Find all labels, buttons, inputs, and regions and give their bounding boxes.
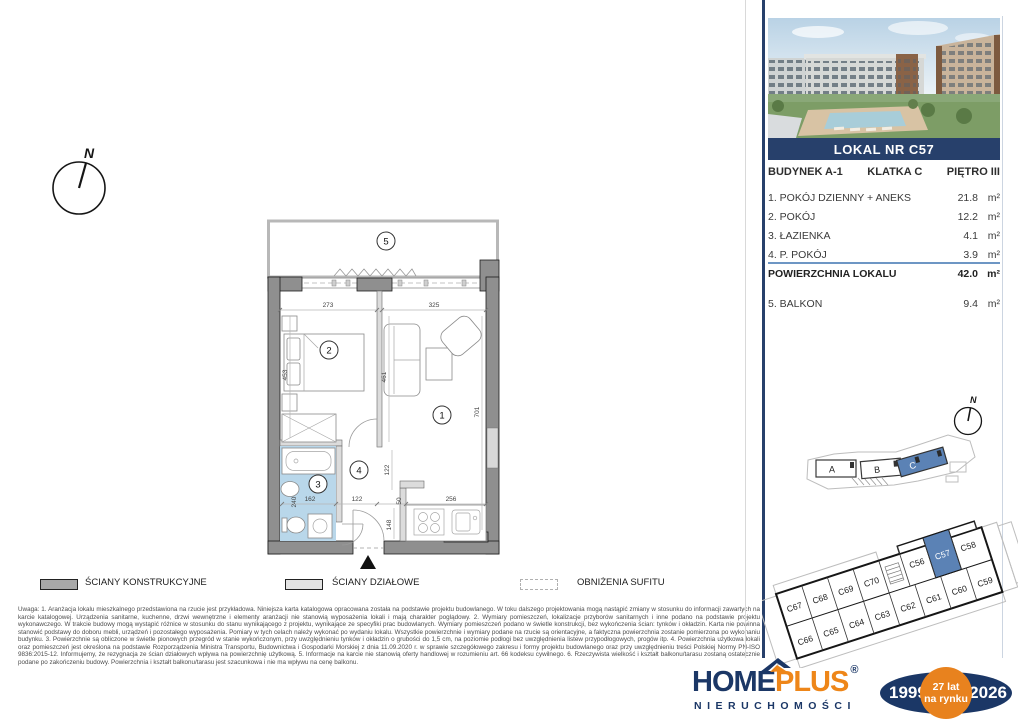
siteplan-hatch [852, 478, 888, 485]
brand-subtitle: NIERUCHOMOŚCI [694, 700, 856, 712]
room-5-badge: 5 [383, 237, 388, 248]
room-4-badge: 4 [356, 466, 361, 477]
unit-banner: LOKAL NR C57 [768, 138, 1000, 160]
svg-text:256: 256 [446, 496, 457, 503]
svg-text:273: 273 [323, 302, 334, 309]
staircase-label: KLATKA C [867, 166, 922, 178]
building-c: C [897, 447, 948, 477]
north-label: N [84, 145, 95, 161]
room-1-badge: 1 [439, 411, 444, 422]
balcony-row: 5. BALKON 9.4 m² [768, 298, 1000, 310]
svg-text:148: 148 [386, 519, 393, 530]
svg-text:325: 325 [429, 302, 440, 309]
bedroom-furniture [282, 316, 364, 442]
registered-mark: ® [850, 664, 858, 676]
building-label: BUDYNEK A-1 [768, 166, 843, 178]
coffee-table [426, 348, 452, 380]
legend-swatch-structural [40, 579, 78, 590]
legend-label-ceiling: OBNIŻENIA SUFITU [577, 577, 665, 588]
badge-year-end: 2026 [969, 683, 1007, 703]
nightstand [282, 394, 297, 411]
toilet-tank [282, 518, 287, 532]
badge-line-2: na rynku [924, 693, 968, 705]
room-3-badge: 3 [315, 480, 320, 491]
svg-text:122: 122 [384, 464, 391, 475]
livingroom-furniture [384, 313, 486, 541]
svg-text:461: 461 [381, 371, 388, 382]
nightstand [282, 316, 297, 331]
svg-text:162: 162 [305, 496, 316, 503]
kitchen-counter [406, 505, 486, 541]
legend-swatch-partition [285, 579, 323, 590]
floor-unit-grid: C67 C68 C69 C70 C56 C57 C58 C66 C65 C64 … [762, 498, 1018, 668]
catalog-card-page: N [0, 0, 1024, 724]
svg-text:701: 701 [474, 406, 481, 417]
shaft [487, 428, 498, 468]
washing-machine [308, 514, 332, 538]
north-label-small: N [970, 395, 977, 405]
svg-text:240: 240 [291, 496, 298, 507]
badge-line-1: 27 lat [933, 681, 960, 693]
svg-text:122: 122 [352, 496, 363, 503]
building-a-label: A [829, 465, 835, 475]
room-2-badge: 2 [326, 346, 331, 357]
washbasin [281, 482, 299, 497]
legend-label-structural: ŚCIANY KONSTRUKCYJNE [85, 577, 207, 588]
area-row-2: 2. POKÓJ 12.2 m² [768, 211, 1000, 223]
toilet [287, 517, 305, 533]
bathtub [282, 448, 335, 474]
north-compass-main: N [44, 142, 116, 218]
svg-text:453: 453 [282, 369, 289, 380]
building-b-label: B [874, 465, 881, 475]
badge-circle: 27 lat na rynku [920, 667, 972, 719]
svg-text:50: 50 [396, 497, 403, 505]
entrance-arrow [360, 555, 376, 569]
area-row-3: 3. ŁAZIENKA 4.1 m² [768, 230, 1000, 242]
roof-icon [760, 658, 792, 673]
legend-swatch-ceiling [520, 579, 558, 590]
area-row-1: 1. POKÓJ DZIENNY + ANEKS 21.8 m² [768, 192, 1000, 204]
legal-disclaimer: Uwaga: 1. Aranżacja lokalu mieszkalnego … [18, 606, 760, 666]
table-divider-rule [768, 262, 1000, 264]
building-photo [768, 18, 1000, 138]
area-row-4: 4. P. POKÓJ 3.9 m² [768, 249, 1000, 261]
divider-light-left [745, 0, 746, 658]
building-b: B [860, 458, 901, 478]
homeplus-logo: HOMEPLUS® NIERUCHOMOŚCI [692, 664, 878, 718]
floor-plan: 273 325 453 461 701 122 122 162 240 50 2… [246, 212, 516, 576]
floor-label: PIĘTRO III [947, 166, 1000, 178]
legend-label-partition: ŚCIANY DZIAŁOWE [332, 577, 419, 588]
compass-needle [79, 163, 86, 188]
area-total-row: POWIERZCHNIA LOKALU 42.0 m² [768, 268, 1000, 280]
pillow [287, 338, 300, 360]
anniversary-badge: 1999 2026 27 lat na rynku [880, 670, 1012, 716]
unit-meta-row: BUDYNEK A-1 KLATKA C PIĘTRO III [768, 166, 1000, 178]
